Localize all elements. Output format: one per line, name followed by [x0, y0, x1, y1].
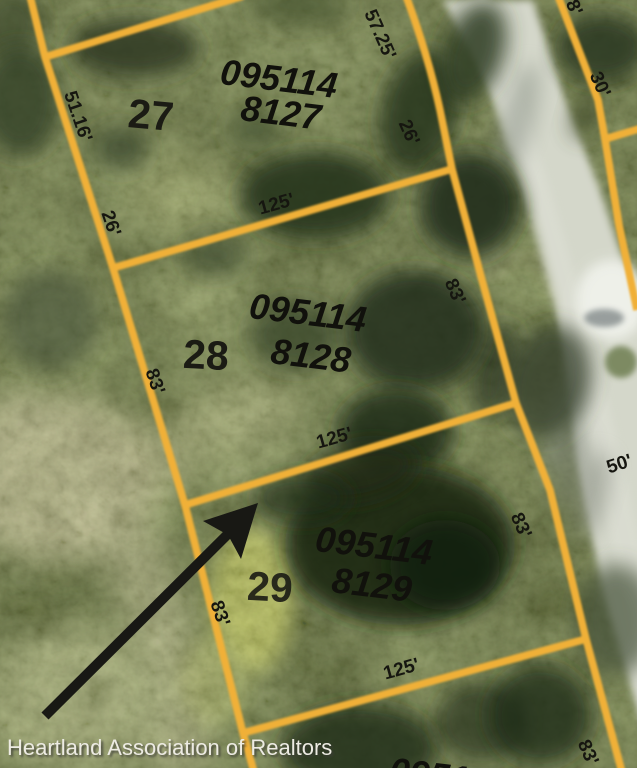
svg-text:Heartland Association of Realt: Heartland Association of Realtors	[7, 735, 332, 760]
svg-text:27: 27	[126, 90, 175, 140]
svg-text:29: 29	[246, 563, 294, 611]
svg-text:28: 28	[182, 331, 230, 379]
